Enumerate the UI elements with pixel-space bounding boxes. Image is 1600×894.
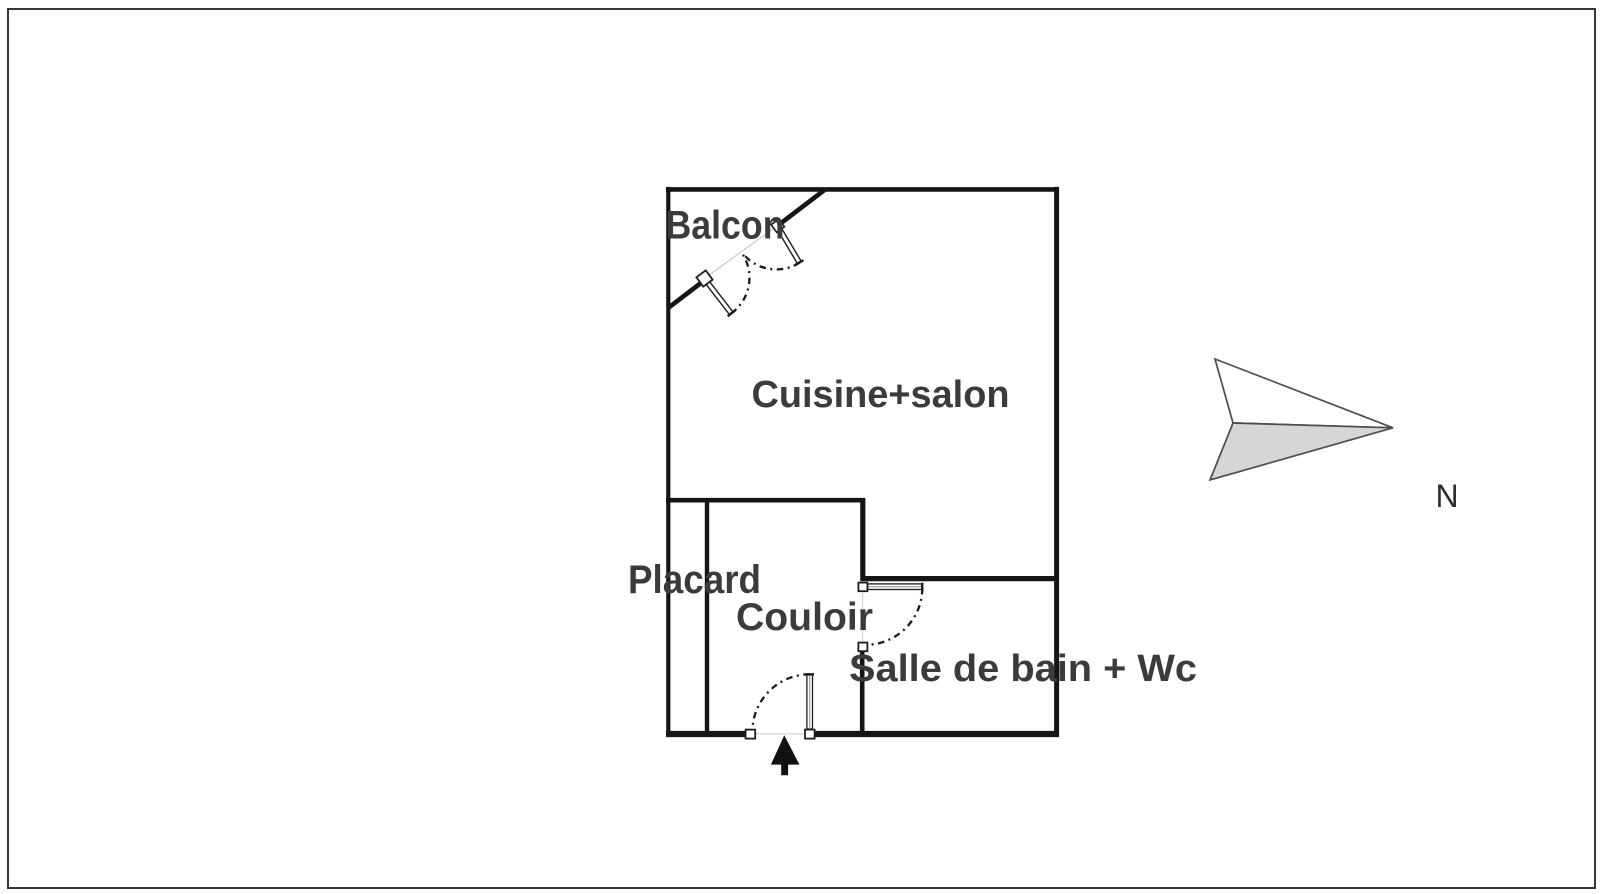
svg-text:N: N (1436, 478, 1459, 514)
svg-text:Couloir: Couloir (736, 596, 873, 639)
svg-text:Balcon: Balcon (666, 204, 785, 248)
svg-text:Salle de bain + Wc: Salle de bain + Wc (849, 648, 1197, 690)
svg-text:Cuisine+salon: Cuisine+salon (752, 374, 1010, 416)
